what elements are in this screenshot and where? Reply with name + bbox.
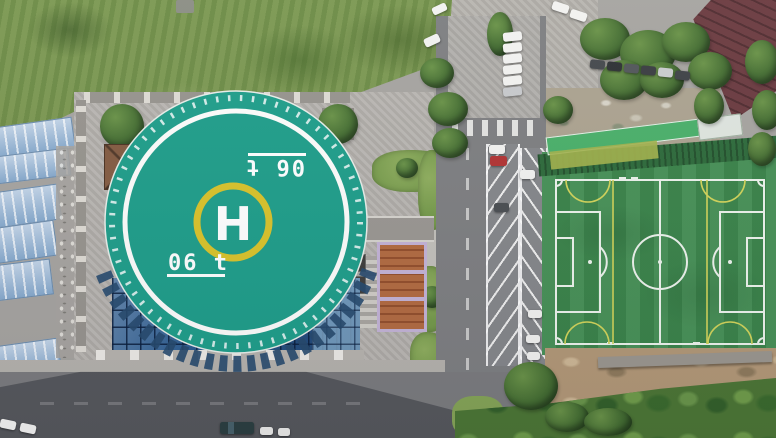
car [624, 63, 640, 74]
car [278, 428, 290, 436]
svg-text:06 t: 06 t [168, 251, 229, 276]
moving-car [220, 422, 254, 434]
car [526, 335, 540, 343]
parapet-wall-left [76, 100, 86, 352]
car [260, 427, 273, 435]
red-car [490, 156, 507, 166]
car [658, 67, 674, 78]
tree [748, 132, 776, 166]
car [527, 352, 540, 360]
tree [745, 40, 776, 84]
parking-bays-west [486, 144, 520, 366]
tree [420, 58, 454, 88]
car [675, 70, 691, 81]
bush-cluster [584, 408, 632, 436]
shed-roof [0, 258, 54, 301]
helipad: H 06 t 06 t [88, 74, 384, 370]
car [520, 170, 535, 179]
car [607, 61, 623, 72]
bush-cluster [545, 402, 589, 432]
tree [688, 52, 732, 90]
bush [396, 158, 418, 178]
car [528, 310, 542, 318]
tree [428, 92, 468, 126]
aerial-photo: H 06 t 06 t [0, 0, 776, 438]
car [641, 65, 657, 76]
tiled-canopy [377, 242, 427, 332]
car [489, 145, 505, 154]
tree [543, 96, 573, 124]
tree [694, 88, 724, 124]
canopy-bar [380, 270, 424, 274]
car [590, 59, 606, 70]
round-tree [504, 362, 558, 410]
weight-marking-rotated: 06 t [244, 153, 306, 179]
helipad-letter: H [214, 197, 253, 251]
hut-on-grass [176, 0, 194, 13]
weight-marking: 06 t [167, 251, 229, 277]
tree [752, 90, 776, 130]
canopy-bar [380, 297, 424, 301]
car [494, 203, 509, 212]
pitch-markings [545, 150, 776, 356]
svg-text:06 t: 06 t [244, 154, 305, 179]
tree [432, 128, 468, 158]
